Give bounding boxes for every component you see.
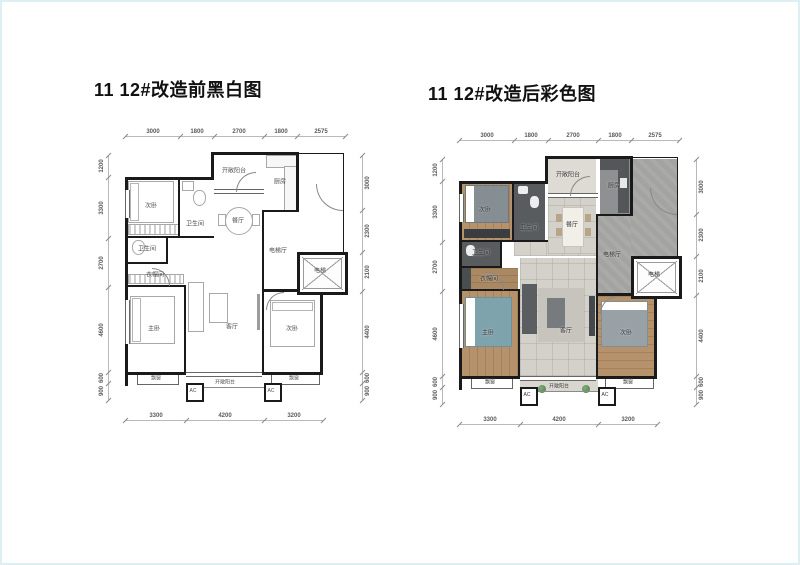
room-label-elevator: 电梯	[314, 266, 326, 275]
dim-label: 2575	[314, 129, 327, 135]
dim-label: 1800	[274, 129, 287, 135]
dim-label: 900	[699, 390, 705, 400]
bed-icon	[466, 298, 511, 346]
wall-segment	[211, 152, 214, 180]
dim-label: 3000	[480, 133, 493, 139]
wall-segment	[545, 156, 633, 159]
closet-shelf-icon	[462, 268, 471, 289]
wall-segment	[654, 293, 657, 379]
wall-segment	[320, 289, 323, 375]
dim-label: 600	[365, 373, 371, 383]
dim-label: 1800	[524, 133, 537, 139]
wall-segment	[264, 210, 297, 212]
window-icon	[459, 194, 464, 222]
wall-segment	[518, 289, 520, 378]
room-label-bedroom-right: 次卧	[620, 328, 632, 337]
room-label-kitchen: 厨房	[608, 181, 620, 190]
wall-segment	[596, 214, 598, 295]
wardrobe-icon	[128, 224, 179, 235]
wall-segment	[125, 177, 214, 180]
wall-segment	[459, 181, 548, 184]
room-label-balcony-top: 开敞阳台	[222, 166, 246, 175]
wall-segment	[459, 266, 502, 268]
window-icon	[186, 372, 262, 377]
room-label-closet: 衣帽间	[146, 270, 164, 279]
dim-label: 2700	[433, 260, 439, 273]
room-label-ac-right: AC	[268, 388, 275, 394]
dim-label: 3000	[365, 176, 371, 189]
dim-label: 3300	[483, 417, 496, 423]
room-label-bay-left: 飘窗	[151, 375, 161, 382]
dim-label: 4600	[433, 327, 439, 340]
dim-label: 2100	[699, 269, 705, 282]
dim-label: 900	[99, 386, 105, 396]
room-label-dining: 餐厅	[232, 216, 244, 225]
coffee-table-icon	[547, 298, 565, 328]
chair-icon	[252, 214, 260, 226]
wall-segment	[166, 236, 168, 264]
dim-line-top	[125, 136, 345, 137]
sofa-icon	[522, 284, 537, 334]
room-label-elevator-hall: 电梯厅	[269, 246, 287, 255]
toilet-icon	[193, 190, 206, 206]
wall-segment	[598, 214, 631, 216]
kitchen-counter-icon	[618, 170, 629, 213]
room-label-bedroom-top: 次卧	[145, 201, 157, 210]
tv-cabinet-icon	[257, 294, 260, 330]
dim-label: 900	[365, 386, 371, 396]
dim-label: 2575	[648, 133, 661, 139]
dim-label: 1800	[190, 129, 203, 135]
dim-label: 1200	[433, 163, 439, 176]
room-label-bathroom-top: 卫生间	[520, 223, 538, 232]
window-icon	[459, 304, 464, 348]
dim-line-left	[108, 155, 109, 400]
window-icon	[125, 300, 130, 344]
wall-segment	[343, 153, 344, 252]
dim-label: 1200	[99, 159, 105, 172]
dim-label: 2700	[99, 256, 105, 269]
dim-label: 3200	[621, 417, 634, 423]
room-label-ac-left: AC	[190, 388, 197, 394]
room-label-balcony-bottom: 开敞阳台	[215, 379, 235, 386]
tv-cabinet-icon	[589, 296, 595, 336]
door-arc-icon	[266, 292, 284, 310]
dim-line-right	[696, 159, 697, 404]
wall-segment	[630, 156, 633, 216]
wall-segment	[211, 152, 299, 155]
wall-segment	[545, 156, 548, 184]
room-label-bathroom-mid: 卫生间	[138, 244, 156, 253]
dim-line-bottom	[459, 424, 657, 425]
door-arc-icon	[236, 172, 256, 192]
dim-label: 2700	[566, 133, 579, 139]
dim-label: 2300	[699, 228, 705, 241]
dim-label: 4400	[365, 325, 371, 338]
dim-line-left	[442, 159, 443, 404]
dim-label: 600	[699, 377, 705, 387]
room-label-balcony-top: 开敞阳台	[556, 170, 580, 179]
dim-label: 3300	[433, 205, 439, 218]
kitchen-counter-icon	[600, 159, 629, 170]
dim-line-top	[459, 140, 679, 141]
dim-label: 2700	[232, 129, 245, 135]
floorplan-before: 11 12#改造前黑白图 3000 1800 2700 1800 2575 33…	[92, 78, 392, 433]
wall-segment	[296, 152, 299, 212]
window-icon	[125, 190, 130, 218]
toilet-icon	[530, 196, 539, 208]
floorplan-drawing-after: 3000 1800 2700 1800 2575 3300 4200 3200 …	[426, 82, 726, 437]
dim-line-right	[362, 155, 363, 400]
chair-icon	[585, 228, 591, 236]
room-label-bay-right: 飘窗	[289, 375, 299, 382]
dim-label: 3300	[149, 413, 162, 419]
dim-label: 4600	[99, 323, 105, 336]
wall-segment	[677, 157, 678, 256]
room-label-ac-right: AC	[602, 392, 609, 398]
coffee-table-icon	[209, 293, 228, 323]
wall-segment	[633, 157, 678, 158]
bed-icon	[130, 296, 175, 344]
sink-icon	[620, 178, 627, 188]
dim-label: 900	[433, 390, 439, 400]
dim-label: 2100	[365, 265, 371, 278]
room-label-bathroom-top: 卫生间	[186, 219, 204, 228]
wall-segment	[184, 285, 186, 374]
chair-icon	[218, 214, 226, 226]
chair-icon	[556, 214, 562, 222]
room-label-bay-left: 飘窗	[485, 379, 495, 386]
wall-segment	[459, 240, 548, 242]
wall-segment	[500, 240, 502, 268]
wall-segment	[262, 291, 264, 372]
room-label-living: 客厅	[226, 322, 238, 331]
dim-label: 600	[99, 373, 105, 383]
sink-icon	[182, 181, 194, 191]
wardrobe-icon	[464, 229, 510, 238]
floorplan-after: 11 12#改造后彩色图 3000 1800 2700 1800 2575 33…	[426, 82, 726, 437]
floorplan-drawing-before: 3000 1800 2700 1800 2575 3300 4200 3200 …	[92, 78, 392, 433]
dim-label: 3200	[287, 413, 300, 419]
dim-line-bottom	[125, 420, 323, 421]
wall-segment	[125, 236, 214, 238]
dim-label: 1800	[608, 133, 621, 139]
room-label-elevator: 电梯	[648, 270, 660, 279]
sofa-icon	[188, 282, 204, 332]
room-label-master: 主卧	[482, 328, 494, 337]
wall-segment	[299, 153, 344, 154]
room-label-master: 主卧	[148, 324, 160, 333]
room-label-bedroom-top: 次卧	[479, 205, 491, 214]
dim-label: 3000	[699, 180, 705, 193]
dim-label: 4200	[218, 413, 231, 419]
dim-label: 2300	[365, 224, 371, 237]
room-label-bay-right: 飘窗	[623, 379, 633, 386]
dim-label: 3300	[99, 201, 105, 214]
room-label-living: 客厅	[560, 326, 572, 335]
dim-label: 4400	[699, 329, 705, 342]
room-label-dining: 餐厅	[566, 220, 578, 229]
dim-label: 4200	[552, 417, 565, 423]
room-label-bedroom-right: 次卧	[286, 324, 298, 333]
room-label-ac-left: AC	[524, 392, 531, 398]
wall-segment	[125, 262, 168, 264]
window-icon	[520, 376, 596, 381]
wall-segment	[262, 210, 264, 291]
door-arc-icon	[316, 184, 343, 211]
wall-segment	[512, 181, 514, 242]
dim-label: 600	[433, 377, 439, 387]
room-label-balcony-bottom: 开敞阳台	[549, 383, 569, 390]
room-label-bathroom-mid: 卫生间	[472, 248, 490, 257]
chair-icon	[585, 214, 591, 222]
dim-label: 3000	[146, 129, 159, 135]
room-label-elevator-hall: 电梯厅	[603, 250, 621, 259]
chair-icon	[556, 228, 562, 236]
wall-segment	[178, 177, 180, 238]
room-label-kitchen: 厨房	[274, 177, 286, 186]
sink-icon	[518, 186, 528, 194]
wall-segment	[596, 295, 598, 376]
room-label-closet: 衣帽间	[480, 274, 498, 283]
